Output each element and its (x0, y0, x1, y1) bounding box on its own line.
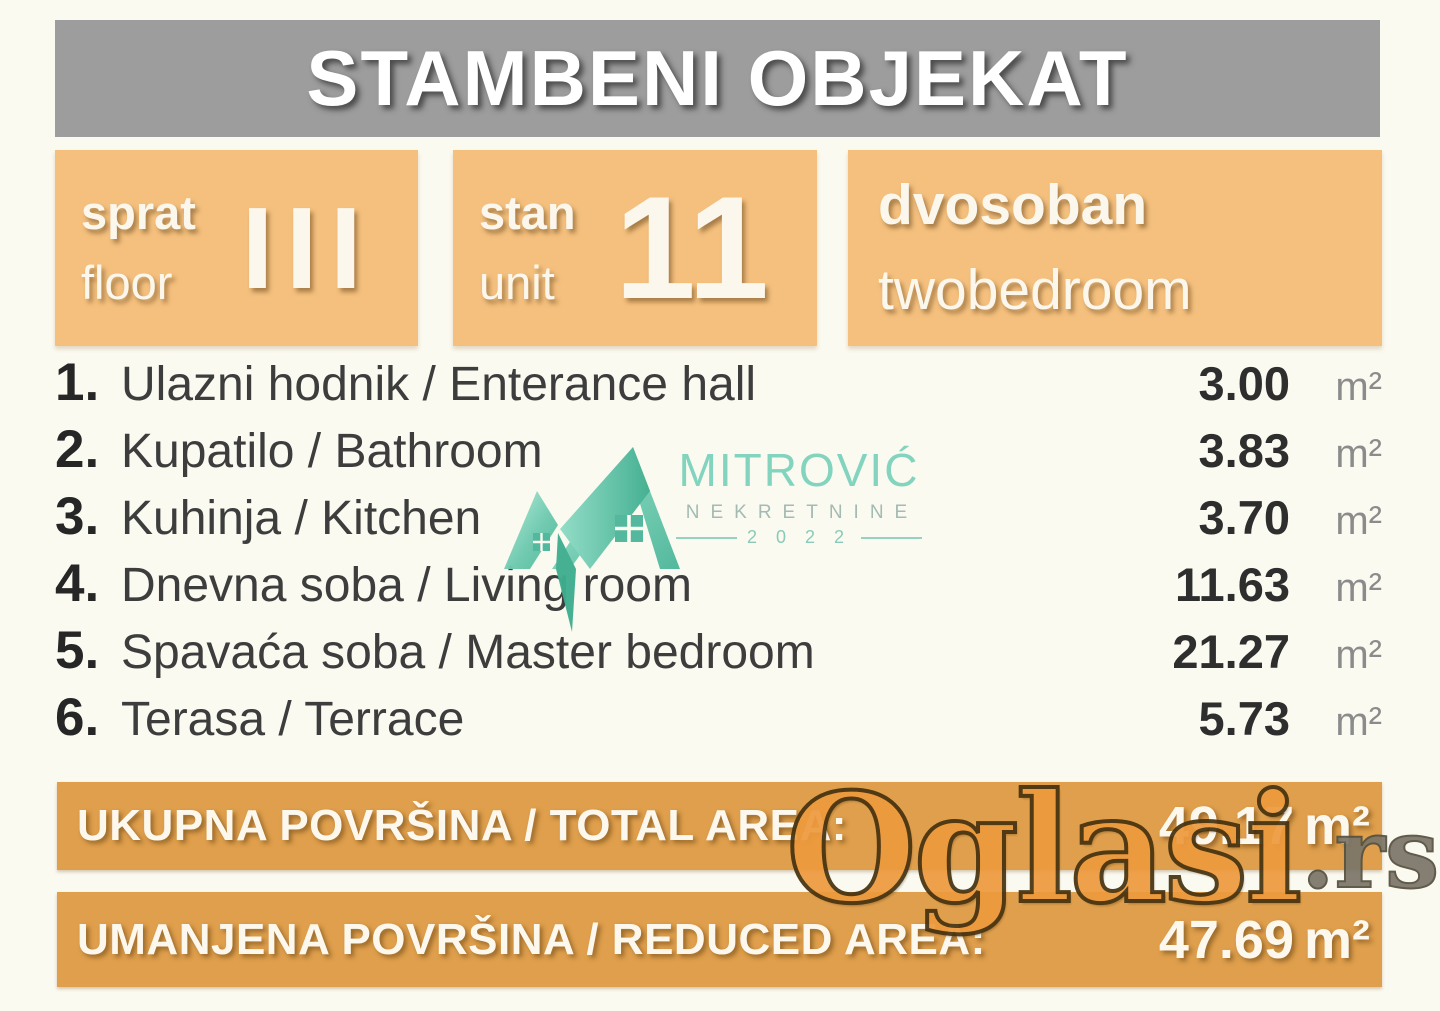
room-area-unit: m² (1300, 566, 1382, 611)
room-number: 6. (55, 687, 117, 748)
unit-label-en: unit (479, 248, 576, 319)
room-row: 1. Ulazni hodnik / Enterance hall 3.00 m… (55, 352, 1382, 419)
layout-info-box: dvosoban twobedroom (848, 150, 1382, 346)
agency-year: 2 0 2 2 (747, 527, 851, 548)
portal-suffix: .rs (1301, 797, 1439, 910)
room-number: 2. (55, 419, 117, 480)
room-number: 1. (55, 352, 117, 413)
building-title-banner: STAMBENI OBJEKAT (55, 20, 1380, 137)
room-area: 3.83 (1199, 423, 1290, 478)
room-area: 3.00 (1199, 356, 1290, 411)
small-window-icon (533, 533, 550, 551)
layout-labels: dvosoban twobedroom (878, 163, 1192, 334)
unit-info-box: stan unit 11 (453, 150, 817, 346)
room-area-unit: m² (1300, 633, 1382, 678)
agency-watermark: MITROVIĆ NEKRETNINE 2 0 2 2 (500, 423, 930, 638)
total-area-label: UKUPNA POVRŠINA / TOTAL AREA: (77, 801, 847, 851)
floor-labels: sprat floor (81, 178, 196, 319)
unit-labels: stan unit (479, 178, 576, 319)
agency-year-row: 2 0 2 2 (676, 527, 922, 548)
layout-label-en: twobedroom (878, 248, 1192, 334)
page-title: STAMBENI OBJEKAT (306, 33, 1128, 124)
room-area: 5.73 (1199, 691, 1290, 746)
floor-label-sr: sprat (81, 178, 196, 249)
portal-name: Oglasi (786, 761, 1299, 937)
unit-value: 11 (615, 175, 769, 321)
room-number: 5. (55, 620, 117, 681)
listing-flyer: STAMBENI OBJEKAT sprat floor III stan un… (0, 0, 1440, 1011)
room-area-unit: m² (1300, 700, 1382, 745)
room-number: 3. (55, 486, 117, 547)
room-name: Terasa / Terrace (117, 692, 1199, 747)
layout-label-sr: dvosoban (878, 163, 1192, 249)
room-area-unit: m² (1300, 432, 1382, 477)
rule-left (676, 537, 737, 539)
agency-house-logo-icon (500, 429, 682, 634)
room-row: 6. Terasa / Terrace 5.73 m² (55, 687, 1382, 754)
agency-text: MITROVIĆ NEKRETNINE 2 0 2 2 (676, 447, 922, 548)
room-area: 11.63 (1175, 557, 1290, 612)
room-area-unit: m² (1300, 365, 1382, 410)
rule-right (861, 537, 922, 539)
room-area: 21.27 (1172, 624, 1290, 679)
large-window-icon (615, 515, 643, 542)
room-name: Ulazni hodnik / Enterance hall (117, 357, 1199, 412)
agency-name: MITROVIĆ (676, 447, 922, 493)
room-number: 4. (55, 553, 117, 614)
floor-info-box: sprat floor III (55, 150, 418, 346)
agency-subtitle: NEKRETNINE (676, 502, 922, 524)
unit-label-sr: stan (479, 178, 576, 249)
floor-value: III (241, 190, 374, 306)
portal-watermark: Oglasi.rs (786, 774, 1439, 924)
floor-label-en: floor (81, 248, 196, 319)
room-area: 3.70 (1199, 490, 1290, 545)
room-area-unit: m² (1300, 499, 1382, 544)
